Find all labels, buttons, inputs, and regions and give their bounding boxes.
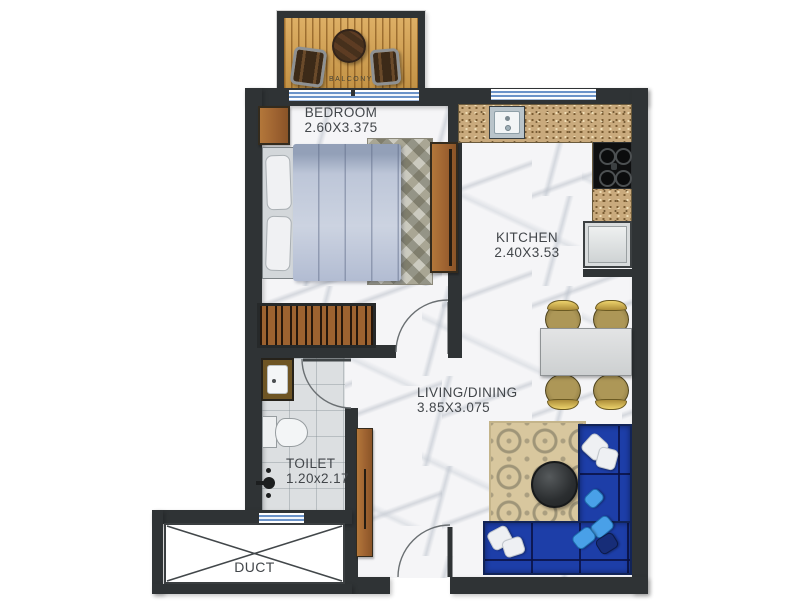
sink-faucet: [505, 116, 510, 121]
duct-label: DUCT: [164, 560, 345, 575]
fridge-door: [588, 226, 627, 263]
bed-duvet: [293, 144, 401, 281]
shower-arm: [256, 481, 265, 485]
wall-left: [245, 88, 262, 512]
bed-pillow-bottom: [265, 216, 292, 272]
coffee-table: [531, 461, 578, 508]
wall-right: [632, 88, 648, 594]
wall-duct-left: [152, 510, 163, 594]
washbasin-tap: [272, 379, 276, 383]
dining-table: [540, 328, 632, 376]
bedroom-label: BEDROOM 2.60X3.375: [280, 105, 402, 135]
wc-bowl: [275, 418, 308, 447]
toilet-label: TOILET 1.20x2.17: [286, 456, 356, 486]
fridge: [583, 221, 632, 268]
balcony: BALCONY: [277, 11, 425, 90]
balcony-table: [332, 29, 366, 63]
wardrobe-handle: [449, 149, 452, 266]
toilet-name: TOILET: [286, 456, 356, 471]
kitchen-sink: [489, 106, 525, 139]
living-dining-dimensions: 3.85X3.075: [417, 400, 547, 415]
bedroom-name: BEDROOM: [280, 105, 402, 120]
wall-bottom-right-segment: [450, 577, 648, 594]
bedroom-dimensions: 2.60X3.375: [280, 120, 402, 135]
stove-hob: [593, 142, 632, 189]
kitchen-label: KITCHEN 2.40X3.53: [467, 230, 587, 260]
entry-cabinet: [356, 428, 373, 557]
toilet-dimensions: 1.20x2.17: [286, 471, 356, 486]
kitchen-name: KITCHEN: [467, 230, 587, 245]
bookshelf: [257, 303, 376, 348]
wall-duct-bottom: [152, 584, 352, 594]
window-mullion: [351, 90, 355, 96]
floor-plan: BALCONY: [0, 0, 801, 601]
balcony-deck: BALCONY: [284, 18, 418, 90]
wall-duct-top: [152, 510, 352, 524]
living-dining-label: LIVING/DINING 3.85X3.075: [417, 385, 547, 415]
shower-control: [266, 468, 271, 473]
cabinet-handle: [364, 469, 366, 529]
living-dining-name: LIVING/DINING: [417, 385, 547, 400]
washbasin: [261, 358, 294, 401]
kitchen-dimensions: 2.40X3.53: [467, 245, 587, 260]
balcony-label: BALCONY: [284, 72, 418, 87]
kitchen-counter-top: [458, 104, 632, 143]
sink-drain: [505, 125, 511, 131]
kitchen-window: [490, 88, 597, 101]
wardrobe: [430, 142, 458, 273]
stove-controls: [611, 163, 617, 170]
washbasin-bowl: [267, 365, 288, 394]
bed-pillow-top: [265, 155, 292, 211]
dining-chair: [593, 374, 629, 407]
shower-control: [266, 493, 271, 498]
kitchen-ledge: [583, 269, 632, 277]
dining-chair: [545, 374, 581, 407]
